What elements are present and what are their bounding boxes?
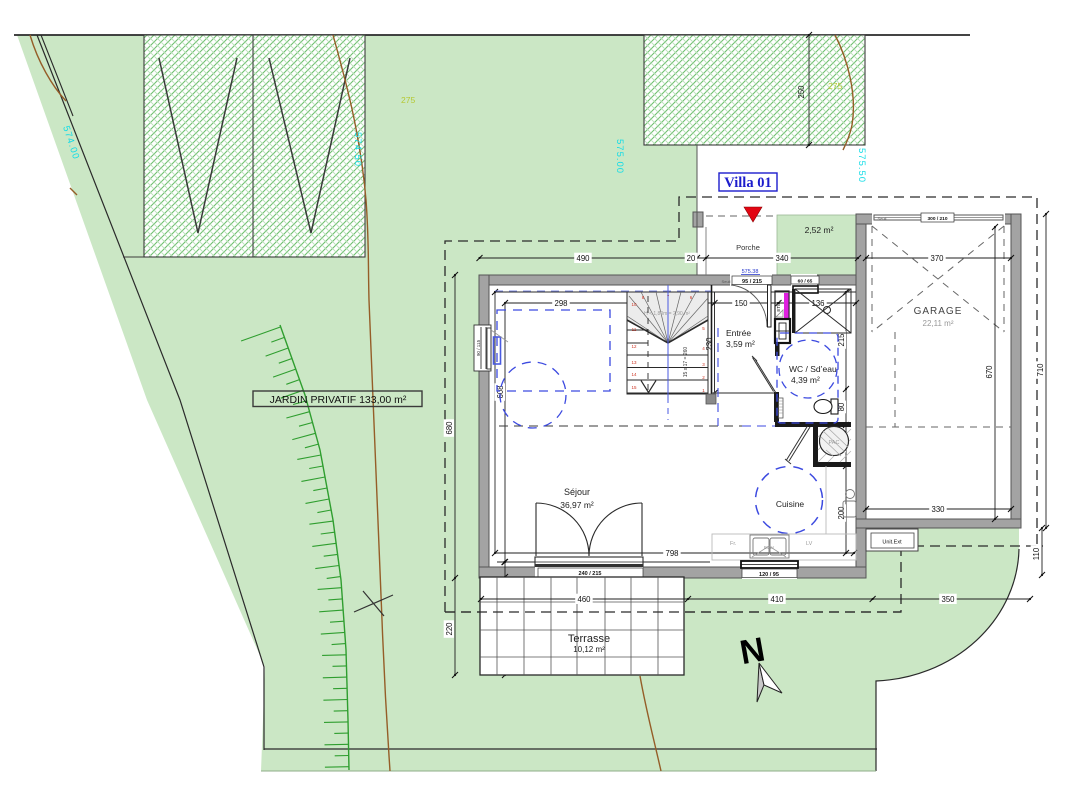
svg-text:Seuil: Seuil: [878, 216, 887, 221]
svg-text:20: 20: [687, 254, 696, 263]
svg-text:3,59 m²: 3,59 m²: [726, 339, 755, 349]
svg-text:680: 680: [445, 421, 454, 435]
svg-text:4,39 m²: 4,39 m²: [791, 375, 820, 385]
svg-text:574.50: 574.50: [352, 132, 363, 167]
svg-text:LV: LV: [806, 541, 813, 547]
svg-text:220: 220: [445, 622, 454, 636]
svg-text:300 / 210: 300 / 210: [927, 216, 947, 222]
svg-text:200: 200: [837, 506, 846, 520]
svg-text:11: 11: [632, 327, 637, 332]
svg-text:275: 275: [401, 95, 415, 105]
svg-text:Villa 01: Villa 01: [724, 175, 771, 191]
svg-text:575.00: 575.00: [614, 139, 625, 174]
svg-text:JARDIN PRIVATIF 133,00 m²: JARDIN PRIVATIF 133,00 m²: [270, 394, 407, 406]
svg-text:150: 150: [734, 299, 748, 308]
svg-text:575.38: 575.38: [742, 269, 759, 275]
svg-text:2,52 m²: 2,52 m²: [805, 225, 834, 235]
svg-text:120 / 95: 120 / 95: [759, 572, 779, 578]
svg-text:340: 340: [775, 254, 789, 263]
svg-text:WC / Sd’eau: WC / Sd’eau: [789, 364, 837, 374]
svg-text:22,11 m²: 22,11 m²: [923, 319, 954, 328]
svg-text:350: 350: [941, 595, 955, 604]
svg-text:230: 230: [705, 337, 714, 351]
svg-text:H < 1,80m = 2,90 m²: H < 1,80m = 2,90 m²: [644, 311, 690, 317]
svg-text:10,12 m²: 10,12 m²: [573, 645, 605, 654]
svg-text:95 / 215: 95 / 215: [742, 279, 762, 285]
svg-text:Terrasse: Terrasse: [568, 633, 610, 645]
svg-text:15 x 17 = 260: 15 x 17 = 260: [683, 347, 689, 378]
svg-text:330: 330: [931, 505, 945, 514]
svg-text:Unit.Ext: Unit.Ext: [882, 540, 902, 546]
svg-text:PAC: PAC: [829, 440, 840, 446]
svg-text:460: 460: [577, 595, 591, 604]
svg-text:Fr.: Fr.: [730, 541, 737, 547]
svg-text:Entrée: Entrée: [726, 328, 751, 338]
svg-text:Porche: Porche: [736, 243, 760, 252]
svg-text:Séjour: Séjour: [564, 487, 590, 497]
svg-text:Cuisine: Cuisine: [776, 499, 805, 509]
svg-text:250: 250: [797, 85, 806, 99]
svg-text:370: 370: [930, 254, 944, 263]
svg-text:798: 798: [665, 549, 678, 558]
svg-text:GARAGE: GARAGE: [914, 306, 963, 317]
svg-text:298: 298: [554, 299, 567, 308]
svg-text:575.50: 575.50: [856, 148, 867, 183]
svg-text:ETEL: ETEL: [776, 300, 781, 312]
svg-text:60 / 65: 60 / 65: [798, 279, 813, 285]
svg-text:670: 670: [985, 365, 994, 379]
svg-text:275: 275: [828, 81, 842, 91]
svg-text:15: 15: [631, 385, 637, 390]
svg-text:90 / 115: 90 / 115: [476, 339, 481, 356]
svg-text:410: 410: [770, 595, 784, 604]
svg-text:710: 710: [1036, 363, 1045, 377]
svg-text:110: 110: [1032, 547, 1041, 560]
svg-text:Seuil: Seuil: [722, 279, 731, 284]
svg-text:240 / 215: 240 / 215: [579, 571, 602, 577]
svg-text:12: 12: [631, 344, 637, 349]
svg-text:490: 490: [576, 254, 590, 263]
svg-text:10: 10: [631, 302, 637, 307]
svg-text:36,97 m²: 36,97 m²: [560, 500, 594, 510]
svg-text:14: 14: [631, 372, 637, 377]
svg-text:13: 13: [631, 360, 637, 365]
